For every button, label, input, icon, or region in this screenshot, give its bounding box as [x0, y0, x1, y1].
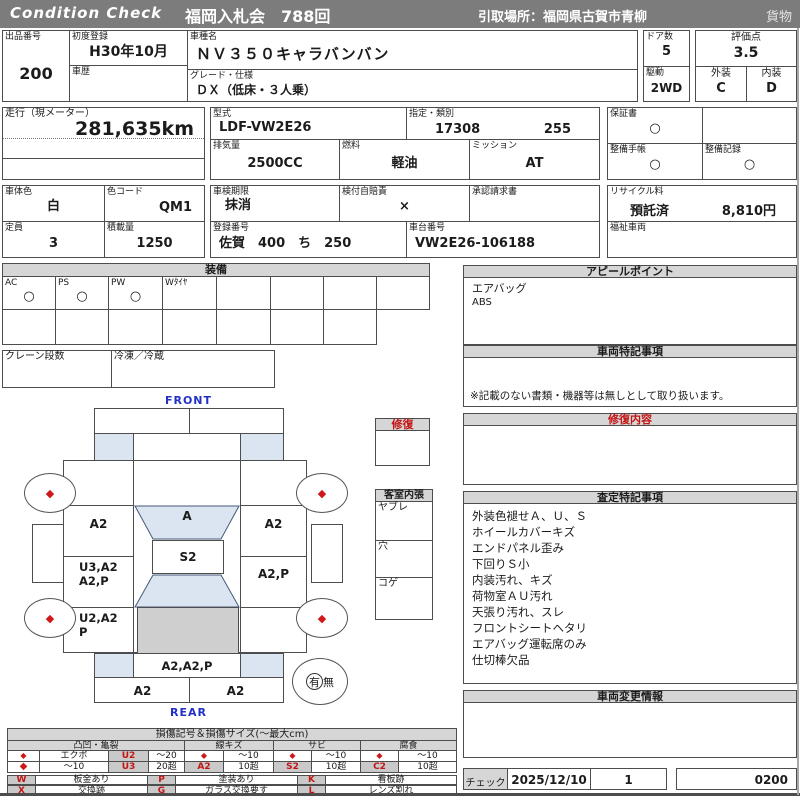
cabin-burn-label: コゲ: [378, 579, 398, 589]
damage-diamond-icon: ◆: [46, 488, 54, 499]
equipment-mark-ps: ○: [56, 290, 108, 304]
equipment-cell-empty-1: [216, 276, 271, 310]
rear-corner-left-panel: [94, 653, 134, 678]
equipment-row2-cell: [323, 309, 377, 345]
divider: [3, 158, 204, 159]
legend-dent-sym-large: ◆: [7, 761, 40, 773]
empty-doc-cell: [702, 107, 797, 144]
assessment-notes-body: 外装色褪せＡ、Ｕ、Ｓ ホイールカバーキズ エンドパネル歪み 下回りＳ小 内装汚れ…: [463, 503, 797, 684]
cabin-tear-label: ヤブレ: [378, 503, 408, 513]
first-registration-label: 初度登録: [72, 32, 108, 42]
interior-grade-cell: 内装 D: [746, 66, 797, 102]
welfare-vehicle-cell: 福祉車両: [607, 221, 797, 258]
approval-request-cell: 承認請求書: [469, 185, 600, 222]
assessment-line: フロントシートヘタリ: [472, 620, 587, 636]
rating-label: 評価点: [696, 33, 796, 43]
rear-bumper-left-damage: A2: [95, 684, 190, 698]
inspection-expiry-cell: 車検期限 抹消: [210, 185, 340, 222]
rear-left-wheel: ◆: [24, 598, 76, 638]
recycle-fee-value: 8,810円: [722, 200, 776, 219]
load-capacity-cell: 積載量 1250: [104, 221, 205, 258]
grade-value: ＤＸ（低床・３人乗）: [196, 83, 316, 97]
equipment-label-ps: PS: [58, 278, 69, 288]
rating-cell: 評価点 3.5: [695, 30, 797, 67]
legend-mark-k-desc: 看板跡: [325, 775, 457, 785]
check-code: 0200: [755, 773, 788, 787]
fuel-value: 軽油: [340, 157, 469, 171]
lot-number-cell: 出品番号 200: [2, 30, 70, 102]
legend-mark-k: K: [297, 775, 326, 785]
right-slide-door-damage: A2,P: [240, 567, 307, 581]
legend-mark-p: P: [147, 775, 176, 785]
front-corner-left-panel: [94, 433, 134, 461]
model-code-cell: 型式 LDF-VW2E26: [210, 107, 407, 140]
damage-code: A2,P: [79, 574, 118, 588]
assessment-line: ホイールカバーキズ: [472, 524, 587, 540]
capacity-value: 3: [3, 237, 104, 251]
assessment-line: 仕切棒欠品: [472, 652, 587, 668]
divider: [189, 409, 190, 433]
diamond-icon: ◆: [376, 752, 382, 760]
repair-mark-body: [375, 430, 430, 466]
divider: [3, 138, 204, 139]
maintenance-book-cell: 整備手帳 ○: [607, 143, 703, 180]
check-number-cell: 1: [590, 768, 667, 790]
assessment-line: エンドパネル歪み: [472, 540, 587, 556]
interior-grade-value: D: [747, 82, 796, 96]
exterior-grade-cell: 外装 C: [695, 66, 747, 102]
color-code-cell: 色コード QM1: [104, 185, 205, 222]
grade-label: グレード・仕様: [190, 71, 253, 81]
equipment-row2-cell: [108, 309, 163, 345]
displacement-value: 2500CC: [211, 157, 339, 171]
presence-no: 無: [323, 674, 334, 690]
legend-size: 10超: [223, 761, 274, 773]
grade-cell: グレード・仕様 ＤＸ（低床・３人乗）: [187, 69, 638, 102]
equipment-label-wtire: Wﾀｲﾔ: [165, 278, 187, 288]
fridge-cell: 冷凍／冷蔵: [111, 350, 275, 388]
equipment-mark-pw: ○: [109, 290, 162, 304]
appeal-points-body: エアバッグ ABS: [463, 277, 797, 345]
maintenance-record-cell: 整備記録 ○: [702, 143, 797, 180]
interior-grade-label: 内装: [747, 69, 796, 79]
brand-logo: Condition Check: [10, 4, 162, 22]
cabin-burn-cell: コゲ: [375, 577, 433, 620]
body-color-label: 車体色: [5, 187, 32, 197]
fuel-cell: 燃料 軽油: [339, 139, 470, 180]
auction-sheet: Condition Check 福岡入札会 788回 引取場所：福岡県古賀市青柳…: [0, 0, 800, 800]
transmission-cell: ミッション AT: [469, 139, 600, 180]
category-badge: 貨物: [766, 6, 792, 25]
equipment-label-ac: AC: [5, 278, 17, 288]
transmission-label: ミッション: [472, 141, 517, 151]
legend-code-a2: A2: [184, 761, 224, 773]
chassis-number-value: VW2E26-106188: [415, 237, 535, 251]
exterior-grade-label: 外装: [696, 69, 746, 79]
auction-title: 福岡入札会 788回: [185, 3, 330, 27]
diamond-icon: ◆: [201, 752, 207, 760]
rating-value: 3.5: [696, 46, 796, 60]
windshield-damage-label: A: [134, 509, 240, 523]
roof-panel: S2: [152, 540, 224, 574]
insurance-cell: 検付自賠責 ×: [339, 185, 470, 222]
body-color-cell: 車体色 白: [2, 185, 105, 222]
diamond-icon: ◆: [289, 752, 295, 760]
rear-corner-right-panel: [240, 653, 284, 678]
cabin-tear-cell: ヤブレ: [375, 501, 433, 541]
drive-type-label: 駆動: [646, 68, 664, 78]
left-front-door-damage: A2: [63, 517, 134, 531]
mileage-value: 281,635km: [75, 118, 194, 140]
crane-label: クレーン段数: [5, 352, 65, 362]
appeal-line: ABS: [472, 296, 492, 310]
model-name-cell: 車種名 ＮＶ３５０キャラバンバン: [187, 30, 638, 70]
vehicle-history-label: 車歴: [72, 67, 90, 77]
legend-mark-w-desc: 板金あり: [35, 775, 148, 785]
warranty-mark: ○: [608, 122, 702, 136]
assessment-line: 荷物室ＡＵ汚れ: [472, 588, 587, 604]
repair-content-body: [463, 425, 797, 485]
equipment-row2-cell: [162, 309, 217, 345]
model-name-value: ＮＶ３５０キャラバンバン: [196, 47, 389, 61]
equipment-cell-empty-2: [270, 276, 324, 310]
lot-number-label: 出品番号: [5, 32, 41, 42]
legend-size: 〜10: [39, 761, 109, 773]
displacement-cell: 排気量 2500CC: [210, 139, 340, 180]
special-note-text: ※記載のない書類・機器等は無しとして取り扱います。: [470, 388, 729, 403]
rear-bumper-right-damage: A2: [188, 684, 283, 698]
maintenance-record-label: 整備記録: [705, 145, 741, 155]
lot-number-value: 200: [3, 67, 69, 81]
equipment-row2-cell: [270, 309, 324, 345]
front-panel: [133, 433, 241, 461]
chassis-number-cell: 車台番号 VW2E26-106188: [406, 221, 600, 258]
recycle-fee-cell: リサイクル料 預託済 8,810円: [607, 185, 797, 222]
left-quarter-damage: U2,A2 P: [79, 611, 118, 639]
legend-size: 10超: [398, 761, 457, 773]
diamond-icon: ◆: [20, 762, 28, 772]
displacement-label: 排気量: [213, 141, 240, 151]
fuel-label: 燃料: [342, 141, 360, 151]
model-code-label: 型式: [213, 109, 231, 119]
damage-diamond-icon: ◆: [318, 488, 326, 499]
vehicle-special-notes-body: ※記載のない書類・機器等は無しとして取り扱います。: [463, 357, 797, 407]
body-hline: [63, 505, 134, 506]
class-number-cell: 指定・類別 17308 255: [406, 107, 600, 140]
diagram-rear-label: REAR: [94, 706, 283, 719]
color-code-label: 色コード: [107, 187, 143, 197]
body-hline: [240, 505, 307, 506]
left-slide-door-damage: U3,A2 A2,P: [79, 560, 118, 588]
equipment-label-pw: PW: [111, 278, 125, 288]
check-label: チェック: [464, 774, 507, 789]
body-hline: [63, 556, 134, 557]
legend-code-c2: C2: [360, 761, 399, 773]
registration-number-label: 登録番号: [213, 223, 249, 233]
class-number-a: 17308: [435, 122, 480, 137]
damage-code: P: [79, 625, 118, 639]
assessment-line: 天張り汚れ、スレ: [472, 604, 587, 620]
equipment-cell-wtire: Wﾀｲﾔ: [162, 276, 217, 310]
warranty-label: 保証書: [610, 109, 637, 119]
maintenance-book-label: 整備手帳: [610, 145, 646, 155]
right-front-door-damage: A2: [240, 517, 307, 531]
load-capacity-value: 1250: [105, 237, 204, 251]
legend-size: 20超: [148, 761, 185, 773]
roof-damage-label: S2: [153, 550, 223, 564]
insurance-label: 検付自賠責: [342, 187, 387, 197]
equipment-cell-ac: AC ○: [2, 276, 56, 310]
damage-code: U3,A2: [79, 560, 118, 574]
insurance-mark: ×: [340, 200, 469, 214]
model-code-value: LDF-VW2E26: [219, 121, 311, 135]
class-number-label: 指定・類別: [409, 109, 454, 119]
warranty-cell: 保証書 ○: [607, 107, 703, 144]
body-hline: [240, 556, 307, 557]
equipment-cell-pw: PW ○: [108, 276, 163, 310]
inspection-expiry-value: 抹消: [225, 199, 251, 213]
approval-request-label: 承認請求書: [472, 187, 517, 197]
legend-size: 10超: [311, 761, 361, 773]
capacity-label: 定員: [5, 223, 23, 233]
assessment-line: エアバッグ運転席のみ: [472, 636, 587, 652]
drive-type-value: 2WD: [644, 81, 689, 95]
legend-mark-w: W: [7, 775, 36, 785]
vehicle-change-info-body: [463, 702, 797, 758]
equipment-row2-cell: [216, 309, 271, 345]
tailgate-damage-label: A2,A2,P: [134, 659, 240, 673]
welfare-vehicle-label: 福祉車両: [610, 223, 646, 233]
first-registration-value: H30年10月: [70, 45, 187, 59]
diamond-icon: ◆: [20, 752, 26, 760]
check-date: 2025/12/10: [508, 773, 590, 787]
title-bar: Condition Check 福岡入札会 788回 引取場所：福岡県古賀市青柳…: [0, 0, 800, 28]
load-capacity-label: 積載量: [107, 223, 134, 233]
assessment-line: 外装色褪せＡ、Ｕ、Ｓ: [472, 508, 587, 524]
transmission-value: AT: [470, 157, 599, 171]
check-number: 1: [591, 773, 666, 787]
right-edge-rule: [797, 28, 799, 795]
equipment-cell-ps: PS ○: [55, 276, 109, 310]
check-date-cell: 2025/12/10: [507, 768, 591, 790]
maintenance-record-mark: ○: [703, 158, 796, 172]
equipment-row2-cell: [55, 309, 109, 345]
assessment-line: 内装汚れ、キズ: [472, 572, 587, 588]
check-label-cell: チェック: [463, 768, 508, 790]
color-code-value: QM1: [159, 200, 192, 215]
registration-number-cell: 登録番号 佐賀 400 ち 250: [210, 221, 407, 258]
drive-type-cell: 駆動 2WD: [643, 66, 690, 102]
rear-window-shape: [134, 574, 240, 608]
rear-right-wheel: ◆: [296, 598, 348, 638]
left-mirror-panel: [32, 524, 64, 583]
door-count-label: ドア数: [646, 32, 673, 42]
front-right-wheel: ◆: [296, 473, 348, 513]
equipment-cell-empty-3: [323, 276, 377, 310]
equipment-header: 装備: [2, 263, 430, 277]
rear-bumper-panel: A2 A2: [94, 677, 284, 703]
pickup-location: 引取場所：福岡県古賀市青柳: [478, 6, 647, 25]
damage-diamond-icon: ◆: [318, 613, 326, 624]
vehicle-history-cell: 車歴: [69, 65, 188, 102]
body-hline: [240, 607, 307, 608]
body-hline: [63, 607, 134, 608]
presence-indicator: 有 無: [292, 658, 348, 705]
damage-diamond-icon: ◆: [46, 613, 54, 624]
appeal-line: エアバッグ: [472, 281, 527, 296]
legend-code-u3: U3: [108, 761, 149, 773]
door-count-cell: ドア数 5: [643, 30, 690, 67]
exterior-grade-value: C: [696, 82, 746, 96]
cargo-area-panel: [137, 607, 239, 654]
cabin-hole-label: 穴: [378, 542, 388, 552]
recycle-status: 預託済: [630, 200, 669, 219]
check-code-cell: 0200: [676, 768, 797, 790]
fridge-label: 冷凍／冷蔵: [114, 352, 164, 362]
legend-code-s2: S2: [273, 761, 312, 773]
legend-mark-p-desc: 塗装あり: [175, 775, 298, 785]
capacity-cell: 定員 3: [2, 221, 105, 258]
equipment-mark-ac: ○: [3, 290, 55, 304]
crane-cell: クレーン段数: [2, 350, 112, 388]
class-number-b: 255: [544, 122, 571, 137]
equipment-cell-empty-4: [376, 276, 430, 310]
chassis-number-label: 車台番号: [409, 223, 445, 233]
cabin-hole-cell: 穴: [375, 540, 433, 578]
right-mirror-panel: [311, 524, 343, 583]
front-left-wheel: ◆: [24, 473, 76, 513]
maintenance-book-mark: ○: [608, 158, 702, 172]
first-registration-cell: 初度登録 H30年10月: [69, 30, 188, 66]
body-color-value: 白: [3, 200, 104, 214]
damage-code: U2,A2: [79, 611, 118, 625]
inspection-expiry-label: 車検期限: [213, 187, 249, 197]
presence-yes-circled: 有: [306, 673, 323, 690]
recycle-fee-label: リサイクル料: [610, 187, 664, 197]
tailgate-panel: A2,A2,P: [133, 653, 241, 678]
bottom-rule: [0, 793, 800, 796]
equipment-row2-cell: [2, 309, 56, 345]
registration-number-value: 佐賀 400 ち 250: [219, 237, 351, 251]
door-count-value: 5: [644, 45, 689, 59]
front-corner-right-panel: [240, 433, 284, 461]
assessment-line: 下回りＳ小: [472, 556, 587, 572]
front-bumper-panel: [94, 408, 284, 434]
diagram-front-label: FRONT: [94, 394, 283, 407]
model-name-label: 車種名: [190, 32, 217, 42]
mileage-cell: 走行（現メーター） 281,635km: [2, 107, 205, 180]
